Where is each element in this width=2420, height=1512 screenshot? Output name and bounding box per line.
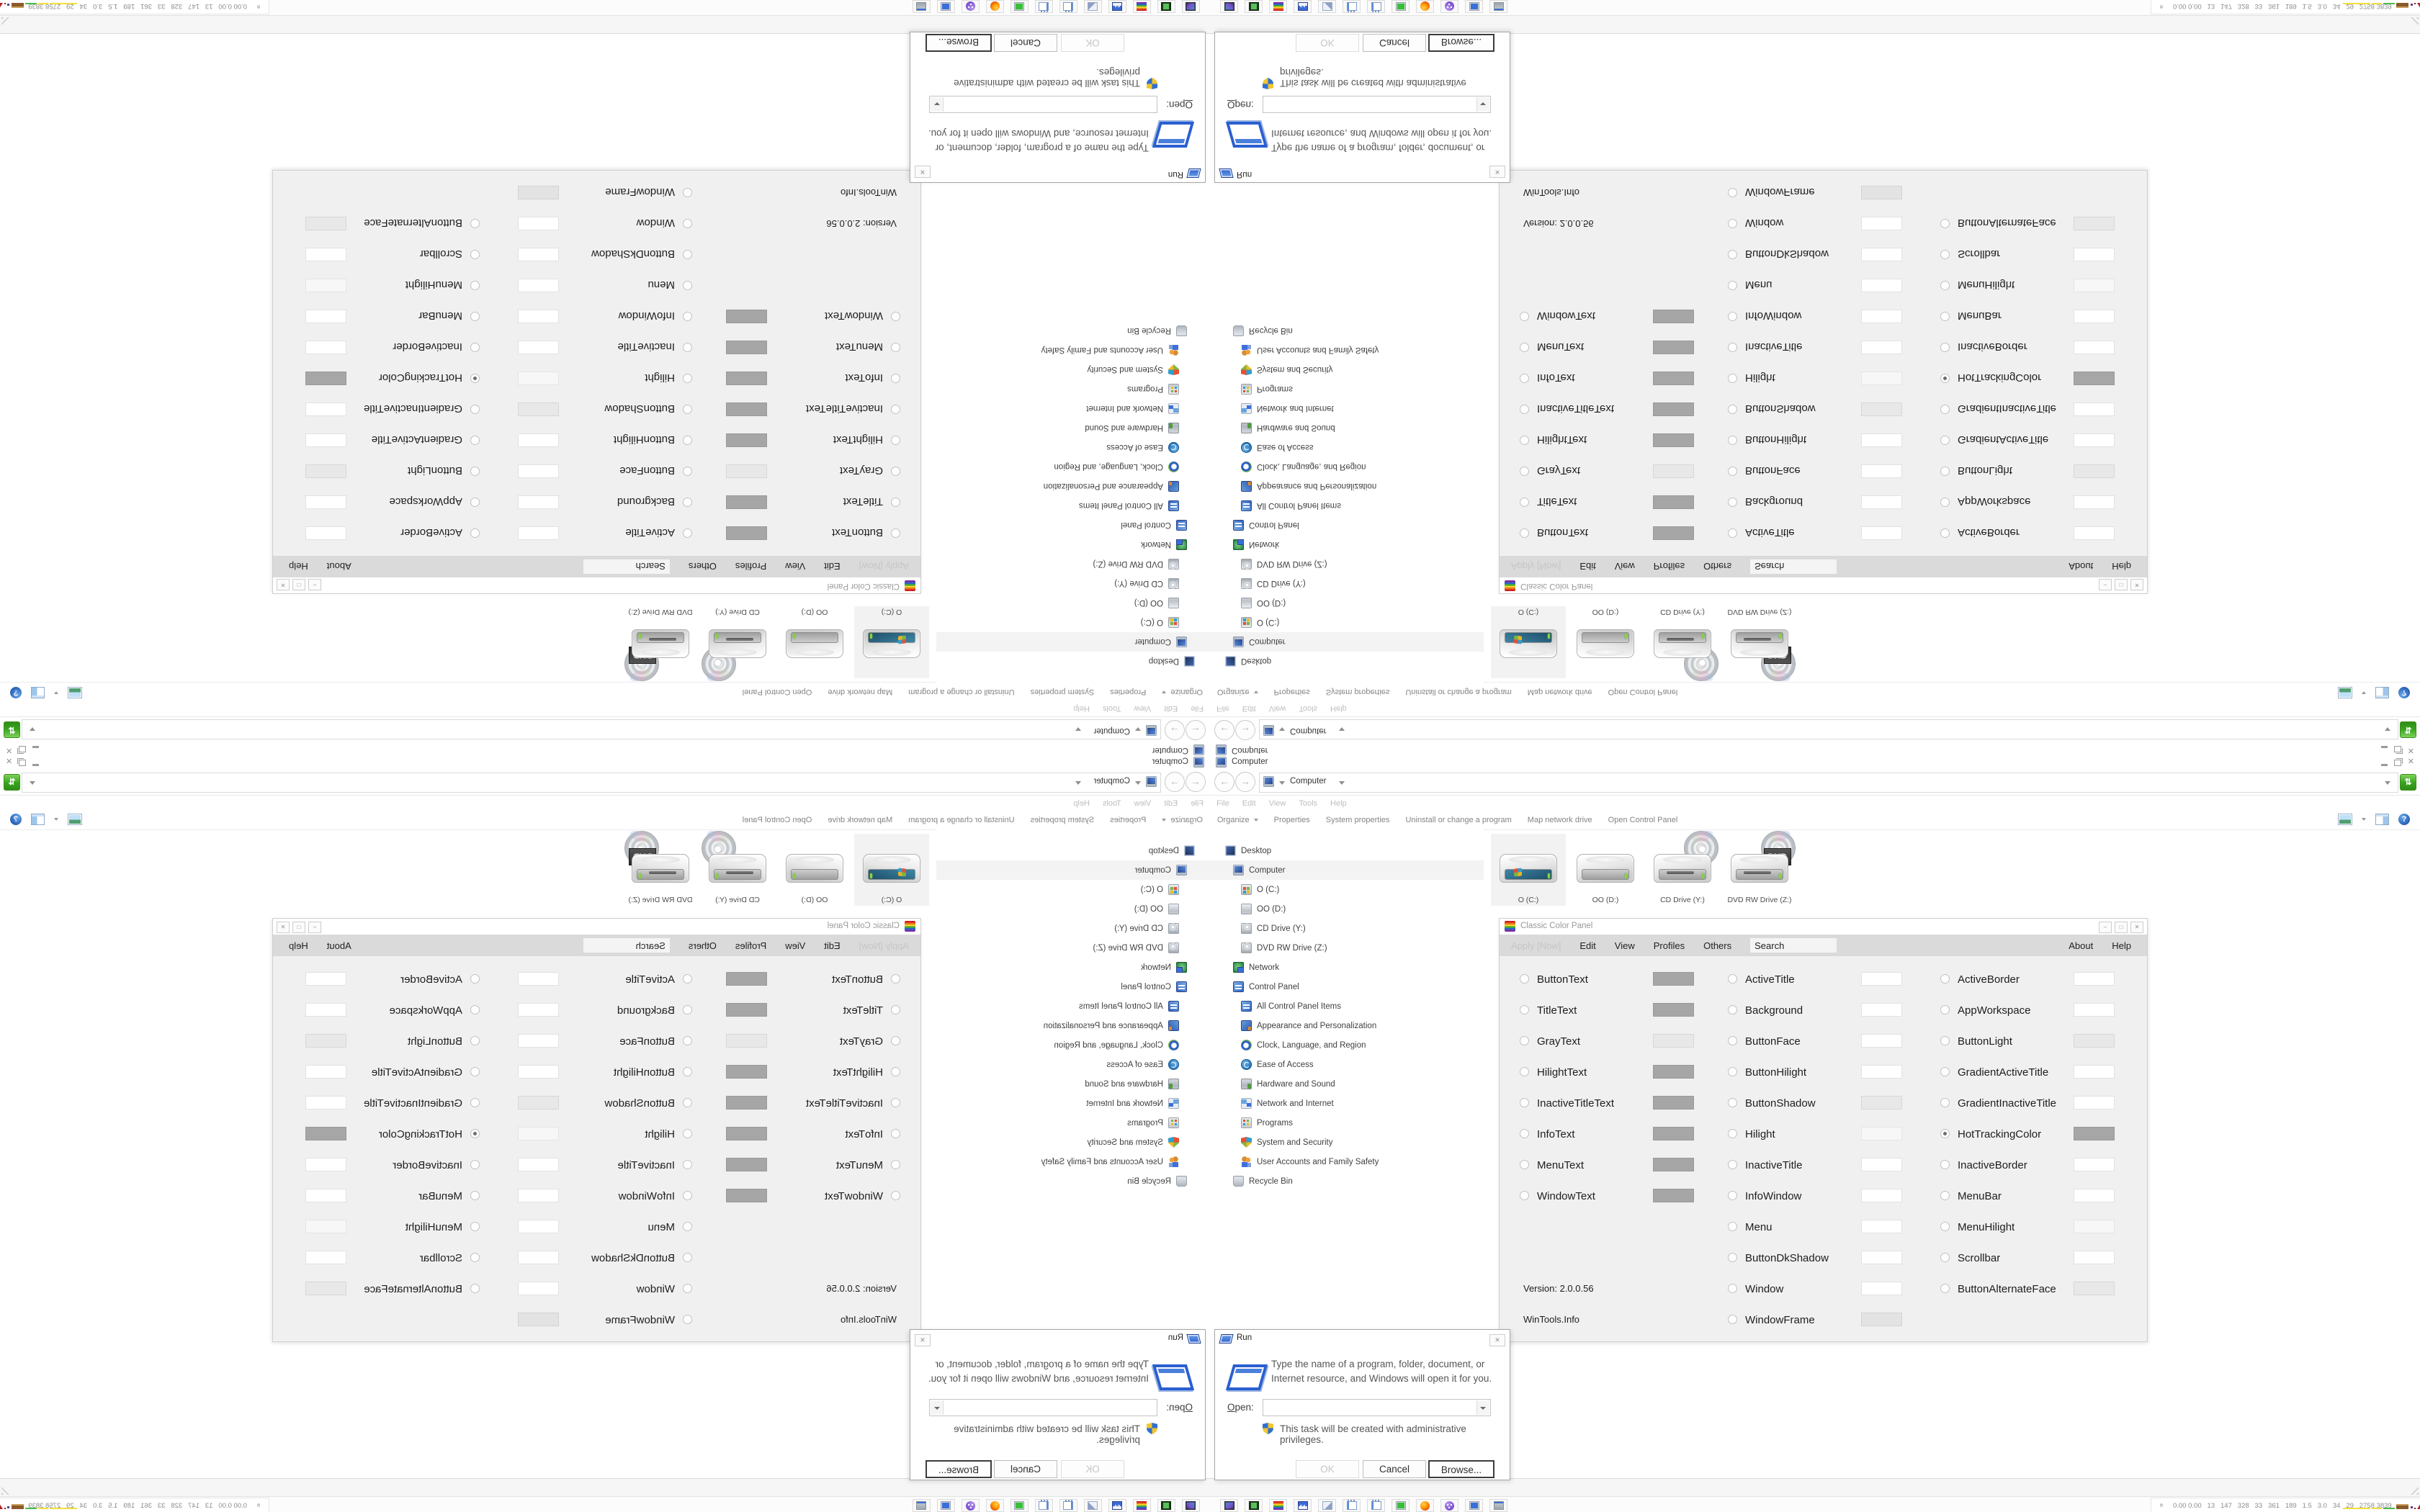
radio-hilight[interactable] [683, 1129, 692, 1138]
radio-inactiveborder[interactable] [470, 343, 480, 352]
color-swatch[interactable] [2074, 1189, 2115, 1202]
color-swatch[interactable] [1861, 372, 1902, 385]
tree-item-cd-drive-y[interactable]: CD Drive (Y:) [936, 574, 1210, 593]
color-swatch[interactable] [305, 1065, 346, 1079]
tree-item-hardware-and-sound[interactable]: Hardware and Sound [1210, 418, 1484, 438]
show-hidden-icons-chevron[interactable] [2157, 6, 2165, 9]
drive-oo-d[interactable]: OO (D:) [777, 834, 852, 906]
color-swatch[interactable] [2074, 341, 2115, 354]
color-swatch[interactable] [305, 526, 346, 540]
taskbar-app-scroll[interactable] [1318, 0, 1336, 13]
radio-buttontext[interactable] [891, 974, 900, 984]
tree-item-oo-d[interactable]: OO (D:) [936, 593, 1210, 613]
address-bar[interactable]: Computer [22, 719, 1161, 739]
ok-button[interactable]: OK [1296, 34, 1359, 52]
tree-item-programs[interactable]: Programs [936, 1113, 1210, 1133]
color-swatch[interactable] [2074, 1127, 2115, 1140]
menu-edit[interactable]: Edit [1579, 562, 1595, 572]
radio-inactivetitletext[interactable] [891, 405, 900, 414]
minimize-icon[interactable]: – [308, 579, 321, 590]
radio-hilight[interactable] [683, 374, 692, 383]
radio-buttonalternateface[interactable] [1940, 219, 1950, 228]
color-swatch[interactable] [2074, 1034, 2115, 1048]
menu-others[interactable]: Others [1703, 562, 1731, 572]
taskbar-app-monitor-green[interactable] [1391, 1499, 1410, 1512]
radio-buttonhilight[interactable] [1728, 1067, 1737, 1076]
tree-item-clock-language-and-region[interactable]: Clock, Language, and Region [936, 1035, 1210, 1055]
color-swatch[interactable] [2074, 1220, 2115, 1233]
color-swatch[interactable] [1653, 1158, 1694, 1171]
drive-cd-drive-y[interactable]: CD Drive (Y:) [1645, 834, 1720, 906]
drive-o-c[interactable]: O (C:) [854, 834, 929, 906]
command-organize[interactable]: Organize [1217, 688, 1258, 696]
tree-item-desktop[interactable]: Desktop [936, 652, 1210, 671]
menu-tools[interactable]: Tools [1103, 799, 1121, 808]
color-swatch[interactable] [305, 1096, 346, 1110]
radio-scrollbar[interactable] [1940, 1253, 1950, 1262]
tree-item-computer[interactable]: Computer [936, 632, 1210, 652]
radio-scrollbar[interactable] [470, 250, 480, 259]
radio-gradientinactivetitle[interactable] [1940, 1098, 1950, 1107]
drive-cd-drive-y[interactable]: CD Drive (Y:) [1645, 606, 1720, 678]
color-swatch[interactable] [305, 248, 346, 261]
color-swatch[interactable] [726, 495, 767, 509]
menu-view[interactable]: View [785, 562, 805, 572]
taskbar-app-purple-ball[interactable] [1440, 0, 1458, 13]
color-swatch[interactable] [1653, 526, 1694, 540]
open-combobox[interactable] [929, 1399, 1157, 1416]
tree-item-cd-drive-y[interactable]: CD Drive (Y:) [1210, 919, 1484, 938]
restore-icon[interactable] [19, 760, 26, 766]
menu-edit[interactable]: Edit [824, 940, 840, 951]
color-swatch[interactable] [1861, 1096, 1902, 1110]
color-swatch[interactable] [2074, 464, 2115, 478]
preview-pane-icon[interactable] [31, 687, 45, 698]
tree-item-recycle-bin[interactable]: Recycle Bin [1210, 321, 1484, 341]
command-organize[interactable]: Organize [1162, 816, 1203, 824]
radio-buttonlight[interactable] [470, 467, 480, 476]
taskbar-app-scroll[interactable] [1318, 1499, 1336, 1512]
color-swatch[interactable] [2074, 1158, 2115, 1171]
tree-item-user-accounts-and-family-safety[interactable]: User Accounts and Family Safety [936, 341, 1210, 360]
color-swatch[interactable] [518, 279, 559, 292]
radio-menu[interactable] [683, 1222, 692, 1231]
tree-item-network-and-internet[interactable]: Network and Internet [936, 399, 1210, 418]
color-swatch[interactable] [1653, 495, 1694, 509]
address-history-caret[interactable] [2385, 727, 2390, 731]
drive-dvd-rw-drive-z[interactable]: DVDDVD RW Drive (Z:) [1722, 834, 1797, 906]
radio-buttonlight[interactable] [470, 1036, 480, 1045]
maximize-icon[interactable]: □ [2115, 579, 2128, 590]
tree-item-control-panel[interactable]: Control Panel [936, 977, 1210, 996]
radio-inactiveborder[interactable] [1940, 1160, 1950, 1169]
color-swatch[interactable] [726, 372, 767, 385]
tree-item-network-and-internet[interactable]: Network and Internet [1210, 1094, 1484, 1113]
tree-item-programs[interactable]: Programs [936, 379, 1210, 399]
command-uninstall-or-change-a-program[interactable]: Uninstall or change a program [908, 688, 1014, 696]
radio-menuhilight[interactable] [470, 281, 480, 290]
color-swatch[interactable] [518, 341, 559, 354]
color-swatch[interactable] [1861, 1189, 1902, 1202]
browse-button[interactable]: Browse... [926, 34, 992, 52]
color-swatch[interactable] [726, 526, 767, 540]
close-icon[interactable] [6, 746, 12, 755]
tree-item-oo-d[interactable]: OO (D:) [936, 899, 1210, 919]
color-swatch[interactable] [305, 464, 346, 478]
menu-profiles[interactable]: Profiles [735, 940, 766, 951]
address-history-caret[interactable] [30, 727, 35, 731]
drive-oo-d[interactable]: OO (D:) [1568, 606, 1643, 678]
restore-icon[interactable] [2394, 760, 2401, 766]
tree-item-recycle-bin[interactable]: Recycle Bin [936, 321, 1210, 341]
chevron-down-icon[interactable] [1075, 727, 1081, 731]
tree-item-system-and-security[interactable]: System and Security [1210, 360, 1484, 379]
command-map-network-drive[interactable]: Map network drive [828, 688, 892, 696]
menu-edit[interactable]: Edit [1164, 799, 1178, 808]
color-swatch[interactable] [1861, 310, 1902, 323]
color-swatch[interactable] [518, 495, 559, 509]
taskbar-app-purple-ball[interactable] [962, 1499, 980, 1512]
tree-item-recycle-bin[interactable]: Recycle Bin [936, 1171, 1210, 1191]
radio-windowframe[interactable] [683, 188, 692, 197]
menu-edit[interactable]: Edit [824, 562, 840, 572]
close-icon[interactable]: ✕ [277, 922, 290, 933]
color-swatch[interactable] [1861, 972, 1902, 986]
chevron-down-icon[interactable] [1279, 727, 1285, 731]
forward-button[interactable] [1165, 772, 1185, 792]
taskbar-app-rainbow[interactable] [1133, 1499, 1151, 1512]
chevron-down-icon[interactable] [1075, 781, 1081, 785]
radio-menuhilight[interactable] [1940, 281, 1950, 290]
color-swatch[interactable] [726, 972, 767, 986]
radio-buttondkshadow[interactable] [1728, 1253, 1737, 1262]
minimize-icon[interactable] [32, 747, 39, 749]
radio-infotext[interactable] [891, 1129, 900, 1138]
tree-item-all-control-panel-items[interactable]: All Control Panel Items [936, 496, 1210, 516]
menu-profiles[interactable]: Profiles [1654, 940, 1685, 951]
forward-button[interactable] [1235, 772, 1255, 792]
menu-help[interactable]: Help [1330, 705, 1347, 714]
breadcrumb[interactable]: Computer [1094, 777, 1131, 786]
resize-grip-icon[interactable] [2407, 1483, 2419, 1495]
tree-item-hardware-and-sound[interactable]: Hardware and Sound [1210, 1074, 1484, 1094]
taskbar-app-installer[interactable] [1489, 1499, 1507, 1512]
close-icon[interactable] [2408, 746, 2414, 755]
tree-item-appearance-and-personalization[interactable]: Appearance and Personalization [936, 477, 1210, 496]
color-swatch[interactable] [518, 402, 559, 416]
taskbar-app-notepad[interactable] [1343, 0, 1361, 13]
color-swatch[interactable] [726, 433, 767, 447]
tree-item-control-panel[interactable]: Control Panel [936, 516, 1210, 535]
color-swatch[interactable] [518, 248, 559, 261]
menu-help[interactable]: Help [289, 940, 308, 951]
radio-buttonface[interactable] [683, 1036, 692, 1045]
restore-icon[interactable] [19, 747, 26, 753]
tree-item-desktop[interactable]: Desktop [1210, 652, 1484, 671]
radio-menutext[interactable] [891, 343, 900, 352]
command-properties[interactable]: Properties [1274, 688, 1310, 696]
color-swatch[interactable] [2074, 279, 2115, 292]
color-swatch[interactable] [518, 1065, 559, 1079]
address-history-caret[interactable] [2385, 781, 2390, 785]
combobox-dropdown-icon[interactable] [931, 1400, 944, 1415]
radio-inactivetitletext[interactable] [1520, 405, 1529, 414]
menu-file[interactable]: File [1191, 799, 1204, 808]
combobox-dropdown-icon[interactable] [1476, 1400, 1489, 1415]
forward-button[interactable] [1165, 720, 1185, 740]
menu-about[interactable]: About [327, 940, 351, 951]
close-icon[interactable]: ✕ [2130, 579, 2143, 590]
help-icon[interactable] [10, 687, 22, 698]
radio-activeborder[interactable] [1940, 528, 1950, 538]
combobox-dropdown-icon[interactable] [1476, 97, 1489, 112]
tree-item-all-control-panel-items[interactable]: All Control Panel Items [936, 996, 1210, 1016]
radio-gradientactivetitle[interactable] [1940, 1067, 1950, 1076]
tree-item-clock-language-and-region[interactable]: Clock, Language, and Region [1210, 1035, 1484, 1055]
radio-window[interactable] [1728, 219, 1737, 228]
command-properties[interactable]: Properties [1110, 688, 1146, 696]
show-hidden-icons-chevron[interactable] [255, 1503, 263, 1506]
radio-appworkspace[interactable] [470, 498, 480, 507]
taskbar-app-notepad[interactable] [1343, 1499, 1361, 1512]
color-swatch[interactable] [1861, 1034, 1902, 1048]
color-swatch[interactable] [1653, 310, 1694, 323]
radio-hilighttext[interactable] [891, 1067, 900, 1076]
taskbar-app-firefox[interactable] [1416, 0, 1434, 13]
refresh-button[interactable] [4, 721, 20, 738]
breadcrumb[interactable]: Computer [1290, 726, 1327, 735]
tree-item-oo-d[interactable]: OO (D:) [1210, 899, 1484, 919]
color-swatch[interactable] [518, 1313, 559, 1326]
radio-buttonhilight[interactable] [1728, 436, 1737, 445]
color-swatch[interactable] [305, 1158, 346, 1171]
tree-item-desktop[interactable]: Desktop [1210, 841, 1484, 860]
color-swatch[interactable] [726, 1096, 767, 1110]
refresh-button[interactable] [2400, 721, 2416, 738]
change-view-icon[interactable] [2338, 814, 2352, 825]
show-hidden-icons-chevron[interactable] [2157, 1503, 2165, 1506]
tree-item-desktop[interactable]: Desktop [936, 841, 1210, 860]
menu-edit[interactable]: Edit [1242, 799, 1256, 808]
taskbar-app-firefox[interactable] [986, 0, 1004, 13]
command-system-properties[interactable]: System properties [1031, 688, 1095, 696]
menu-view[interactable]: View [1134, 705, 1152, 714]
drive-dvd-rw-drive-z[interactable]: DVDDVD RW Drive (Z:) [623, 606, 698, 678]
radio-inactivetitle[interactable] [1728, 1160, 1737, 1169]
menu-others[interactable]: Others [1703, 940, 1731, 951]
browse-button[interactable]: Browse... [926, 1460, 992, 1478]
radio-hilighttext[interactable] [891, 436, 900, 445]
tree-item-programs[interactable]: Programs [1210, 379, 1484, 399]
color-swatch[interactable] [518, 372, 559, 385]
color-swatch[interactable] [305, 1282, 346, 1295]
taskbar-app-purple-ball[interactable] [1440, 1499, 1458, 1512]
taskbar-app-rainbow[interactable] [1269, 1499, 1287, 1512]
color-swatch[interactable] [1861, 526, 1902, 540]
drive-o-c[interactable]: O (C:) [1491, 606, 1566, 678]
color-swatch[interactable] [518, 1189, 559, 1202]
tree-item-o-c[interactable]: O (C:) [936, 880, 1210, 899]
radio-infowindow[interactable] [1728, 312, 1737, 321]
menu-view[interactable]: View [785, 940, 805, 951]
radio-titletext[interactable] [891, 498, 900, 507]
radio-background[interactable] [683, 1005, 692, 1014]
color-swatch[interactable] [1861, 1251, 1902, 1264]
menu-tools[interactable]: Tools [1299, 799, 1317, 808]
radio-scrollbar[interactable] [1940, 250, 1950, 259]
color-swatch[interactable] [1861, 1220, 1902, 1233]
maximize-icon[interactable]: □ [292, 579, 305, 590]
color-swatch[interactable] [518, 186, 559, 199]
tree-item-appearance-and-personalization[interactable]: Appearance and Personalization [936, 1016, 1210, 1035]
color-swatch[interactable] [2074, 1003, 2115, 1017]
color-swatch[interactable] [518, 1158, 559, 1171]
command-properties[interactable]: Properties [1274, 816, 1310, 824]
menu-about[interactable]: About [2069, 562, 2093, 572]
maximize-icon[interactable]: □ [2115, 922, 2128, 933]
drive-oo-d[interactable]: OO (D:) [1568, 834, 1643, 906]
color-swatch[interactable] [518, 1034, 559, 1048]
preview-pane-icon[interactable] [31, 814, 45, 825]
color-swatch[interactable] [2074, 402, 2115, 416]
cancel-button[interactable]: Cancel [994, 34, 1057, 52]
taskbar-app-green-book[interactable] [1245, 1499, 1263, 1512]
tree-item-dvd-rw-drive-z[interactable]: DVD RW Drive (Z:) [1210, 938, 1484, 958]
command-uninstall-or-change-a-program[interactable]: Uninstall or change a program [1405, 688, 1511, 696]
drive-o-c[interactable]: O (C:) [854, 606, 929, 678]
radio-windowtext[interactable] [891, 1191, 900, 1200]
radio-background[interactable] [1728, 1005, 1737, 1014]
color-swatch[interactable] [1861, 464, 1902, 478]
command-organize[interactable]: Organize [1217, 816, 1258, 824]
radio-menutext[interactable] [1520, 1160, 1529, 1169]
menu-help[interactable]: Help [2112, 940, 2131, 951]
color-swatch[interactable] [2074, 372, 2115, 385]
taskbar-app-monitor-green[interactable] [1010, 1499, 1028, 1512]
resize-grip-icon[interactable] [1, 1483, 13, 1495]
radio-buttonhilight[interactable] [683, 436, 692, 445]
tree-item-recycle-bin[interactable]: Recycle Bin [1210, 1171, 1484, 1191]
tree-item-network-and-internet[interactable]: Network and Internet [936, 1094, 1210, 1113]
close-icon[interactable] [1489, 166, 1505, 178]
drive-dvd-rw-drive-z[interactable]: DVDDVD RW Drive (Z:) [1722, 606, 1797, 678]
refresh-button[interactable] [4, 774, 20, 791]
radio-graytext[interactable] [891, 1036, 900, 1045]
radio-gradientinactivetitle[interactable] [470, 1098, 480, 1107]
color-swatch[interactable] [1861, 1127, 1902, 1140]
tree-item-programs[interactable]: Programs [1210, 1113, 1484, 1133]
address-history-caret[interactable] [30, 781, 35, 785]
close-icon[interactable] [915, 166, 931, 178]
tree-item-hardware-and-sound[interactable]: Hardware and Sound [936, 418, 1210, 438]
color-swatch[interactable] [1861, 1003, 1902, 1017]
radio-menuhilight[interactable] [1940, 1222, 1950, 1231]
radio-titletext[interactable] [1520, 1005, 1529, 1014]
menu-others[interactable]: Others [689, 562, 717, 572]
color-swatch[interactable] [305, 1220, 346, 1233]
radio-menubar[interactable] [1940, 312, 1950, 321]
color-swatch[interactable] [726, 1065, 767, 1079]
color-swatch[interactable] [518, 972, 559, 986]
minimize-icon[interactable] [2381, 764, 2388, 766]
color-swatch[interactable] [305, 341, 346, 354]
radio-windowtext[interactable] [1520, 1191, 1529, 1200]
taskbar-app-installer[interactable] [913, 1499, 931, 1512]
preview-pane-icon[interactable] [2375, 814, 2389, 825]
tree-item-ease-of-access[interactable]: Ease of Access [936, 1055, 1210, 1074]
tree-item-system-and-security[interactable]: System and Security [936, 360, 1210, 379]
close-icon[interactable] [2408, 757, 2414, 766]
color-swatch[interactable] [726, 1003, 767, 1017]
radio-buttonshadow[interactable] [1728, 405, 1737, 414]
taskbar-app-monitor-blue[interactable] [1465, 1499, 1483, 1512]
radio-hottrackingcolor[interactable] [1940, 374, 1950, 383]
menu-profiles[interactable]: Profiles [1654, 562, 1685, 572]
color-swatch[interactable] [1653, 1003, 1694, 1017]
maximize-icon[interactable]: □ [292, 922, 305, 933]
tree-item-appearance-and-personalization[interactable]: Appearance and Personalization [1210, 477, 1484, 496]
color-swatch[interactable] [1653, 372, 1694, 385]
radio-buttondkshadow[interactable] [1728, 250, 1737, 259]
menu-profiles[interactable]: Profiles [735, 562, 766, 572]
minimize-icon[interactable]: – [2099, 922, 2112, 933]
color-swatch[interactable] [726, 1127, 767, 1140]
radio-hilighttext[interactable] [1520, 1067, 1529, 1076]
tree-item-computer[interactable]: Computer [1210, 632, 1484, 652]
tree-item-network-and-internet[interactable]: Network and Internet [1210, 399, 1484, 418]
minimize-icon[interactable] [2381, 747, 2388, 749]
tree-item-user-accounts-and-family-safety[interactable]: User Accounts and Family Safety [1210, 341, 1484, 360]
back-button[interactable] [1214, 720, 1234, 740]
taskbar-app-notepad[interactable] [1059, 0, 1077, 13]
command-open-control-panel[interactable]: Open Control Panel [743, 688, 812, 696]
color-swatch[interactable] [726, 310, 767, 323]
taskbar-app-scroll[interactable] [1084, 1499, 1102, 1512]
back-button[interactable] [1214, 772, 1234, 792]
color-swatch[interactable] [305, 279, 346, 292]
color-swatch[interactable] [305, 1127, 346, 1140]
tree-item-cd-drive-y[interactable]: CD Drive (Y:) [1210, 574, 1484, 593]
radio-buttonface[interactable] [1728, 467, 1737, 476]
radio-inactivetitletext[interactable] [1520, 1098, 1529, 1107]
taskbar-app-notepad[interactable] [1035, 0, 1053, 13]
radio-hilight[interactable] [1728, 1129, 1737, 1138]
browse-button[interactable]: Browse... [1428, 1460, 1494, 1478]
tree-item-network[interactable]: Network [936, 535, 1210, 554]
tree-item-dvd-rw-drive-z[interactable]: DVD RW Drive (Z:) [936, 554, 1210, 574]
search-input[interactable] [1750, 559, 1837, 574]
forward-button[interactable] [1235, 720, 1255, 740]
help-icon[interactable] [2398, 814, 2410, 825]
radio-buttonface[interactable] [683, 467, 692, 476]
command-map-network-drive[interactable]: Map network drive [1528, 816, 1592, 824]
menu-help[interactable]: Help [1073, 799, 1090, 808]
drive-oo-d[interactable]: OO (D:) [777, 606, 852, 678]
taskbar-app-notepad[interactable] [1035, 1499, 1053, 1512]
color-swatch[interactable] [305, 1251, 346, 1264]
command-system-properties[interactable]: System properties [1326, 688, 1390, 696]
color-swatch[interactable] [726, 1189, 767, 1202]
tree-item-computer[interactable]: Computer [936, 860, 1210, 880]
open-combobox[interactable] [1263, 1399, 1491, 1416]
command-organize[interactable]: Organize [1162, 688, 1203, 696]
color-swatch[interactable] [1653, 972, 1694, 986]
search-input[interactable] [583, 559, 670, 574]
cancel-button[interactable]: Cancel [1363, 34, 1426, 52]
radio-window[interactable] [1728, 1284, 1737, 1293]
radio-background[interactable] [1728, 498, 1737, 507]
menu-view[interactable]: View [1269, 705, 1286, 714]
